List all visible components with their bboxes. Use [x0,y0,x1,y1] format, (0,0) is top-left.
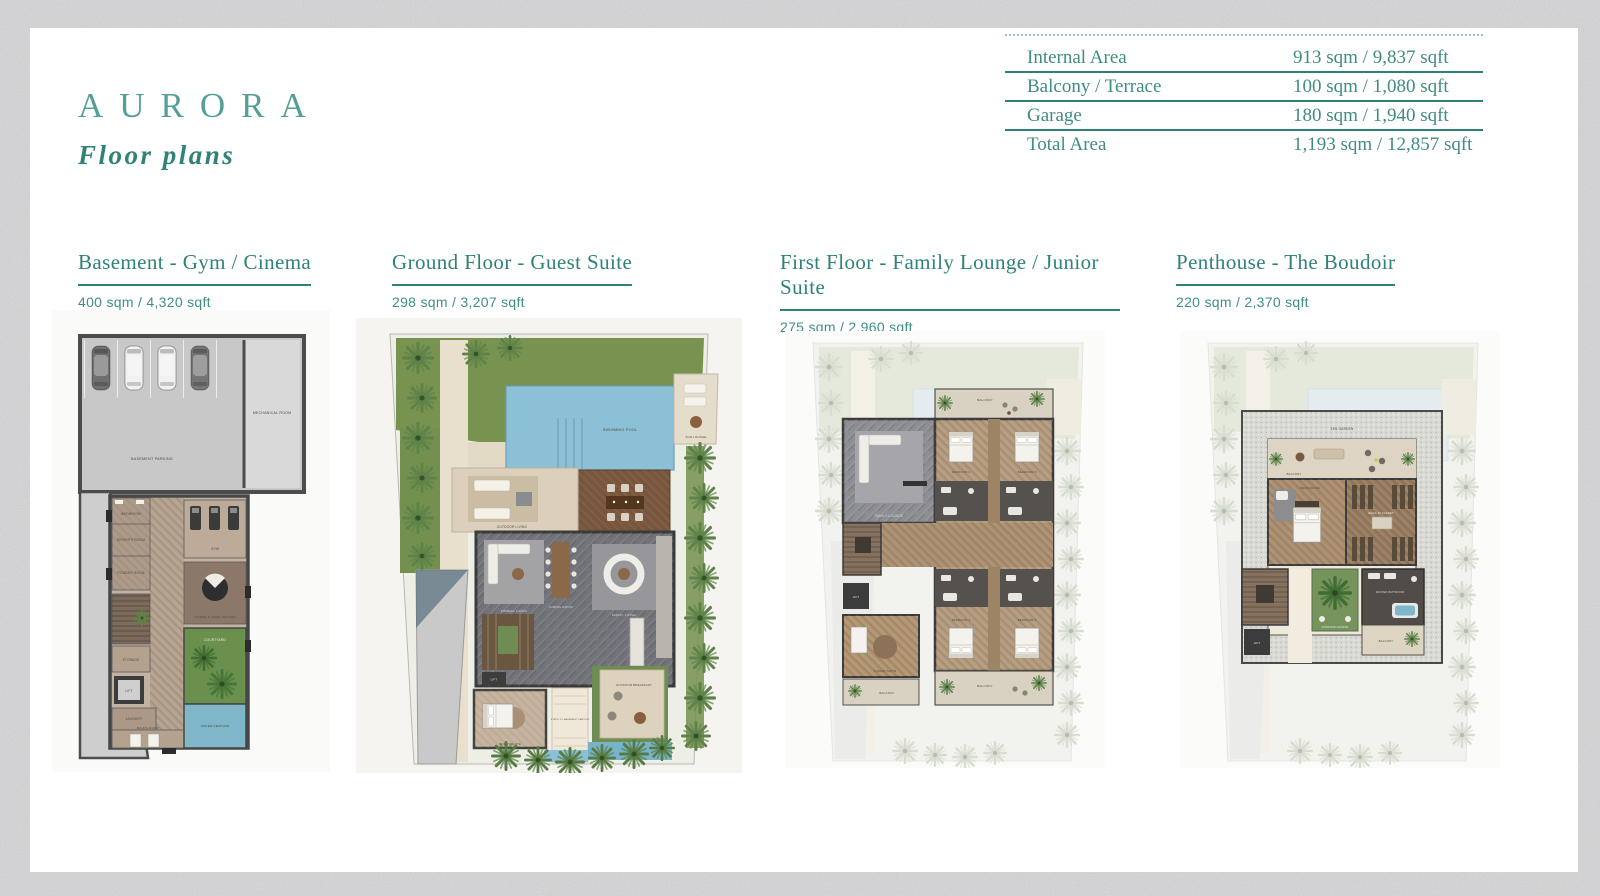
section-title: Penthouse - The Boudoir [1176,250,1395,286]
ground-floor-plan: SWIMMING POOL SUN LOUNGE OUTDOOR DINING [356,318,742,773]
area-summary-table: Internal Area 913 sqm / 9,837 sqft Balco… [1005,34,1483,158]
room-label: BALCONY [977,398,993,402]
room-label: LIFT [125,689,132,693]
palm-tree [192,646,215,669]
row-value: 913 sqm / 9,837 sqft [1293,44,1449,71]
room-label: MECHANICAL ROOM [253,411,292,415]
room-label: BALCONY [977,684,993,688]
brand-title: AURORA [78,86,322,126]
table-row: Internal Area 913 sqm / 9,837 sqft [1005,44,1483,73]
section-header-first: First Floor - Family Lounge / Junior Sui… [780,250,1120,335]
section-title: Ground Floor - Guest Suite [392,250,632,286]
car-white [158,346,176,390]
brand-tagline: Floor plans [78,140,235,171]
row-label: Internal Area [1027,44,1127,71]
row-value: 180 sqm / 1,940 sqft [1293,102,1449,129]
room-label: OUTDOOR BREAKFAST [616,683,652,687]
room-label: BEDROOM 2 [952,470,971,474]
room-label: FORMAL LIVING [501,609,528,613]
plant [134,610,149,625]
room-label: STORAGE [123,658,140,662]
car-suv-dark [191,346,209,390]
room-label: MASTER BATHROOM [1376,591,1404,594]
car-suv-dark [92,346,110,390]
room-label: MAID'S ROOM [137,726,160,730]
room-label: FAMILY LIVING [612,613,637,617]
room-label: BALCONY [1287,472,1302,476]
guest-bed [483,704,513,728]
section-area: 220 sqm / 2,370 sqft [1176,294,1496,310]
room-label: BEDROOM 5 [1018,618,1037,622]
room-label: OUTDOOR LIVING [497,525,528,529]
brochure-canvas: AURORA Floor plans Internal Area 913 sqm… [0,0,1600,896]
row-label: Balcony / Terrace [1027,73,1161,100]
room-label: OUTDOOR LOUNGE [1322,626,1349,629]
table-row: Garage 180 sqm / 1,940 sqft [1005,102,1483,131]
table-row: Balcony / Terrace 100 sqm / 1,080 sqft [1005,73,1483,102]
room-label: ZEN GARDEN [1331,427,1354,431]
section-title: First Floor - Family Lounge / Junior Sui… [780,250,1120,311]
room-label: POWDER ROOM [117,571,144,575]
room-label: WATER FEATURE [201,724,230,728]
room-label: BALCONY [1379,639,1394,643]
room-label: BEDROOM 3 [1018,470,1037,474]
room-label: DRIVER'S ROOM [117,538,145,542]
section-area: 400 sqm / 4,320 sqft [78,294,378,310]
room-label: BASEMENT PARKING [131,457,173,461]
car-white [125,346,143,390]
room-label: BALCONY [879,691,894,695]
room-label: SUN LOUNGE [685,435,706,439]
room-label: SWIMMING POOL [603,428,637,432]
room-label: LAUNDRY [126,717,143,721]
row-label: Total Area [1027,131,1106,158]
room-label: BATHROOM [121,512,141,516]
table-row: Total Area 1,193 sqm / 12,857 sqft [1005,131,1483,158]
room-label: WALK-IN CLOSET [1368,511,1394,515]
brochure-page: AURORA Floor plans Internal Area 913 sqm… [30,28,1578,872]
room-label: DINING ROOM [549,605,573,609]
section-header-basement: Basement - Gym / Cinema 400 sqm / 4,320 … [78,250,378,310]
room-label: JUNIOR SUITE [874,669,896,673]
room-label: LIFT [491,678,498,682]
section-title: Basement - Gym / Cinema [78,250,311,286]
room-label: FAMILY LOUNGE [875,514,904,518]
row-label: Garage [1027,102,1082,129]
palm-tree [209,671,236,698]
row-value: 1,193 sqm / 12,857 sqft [1293,131,1472,158]
penthouse-floor-plan: ZEN GARDEN BALCONY PENTHOUSE [1180,331,1500,768]
section-header-penthouse: Penthouse - The Boudoir 220 sqm / 2,370 … [1176,250,1496,310]
room-label: LIFT [853,595,860,599]
section-area: 298 sqm / 3,207 sqft [392,294,752,310]
room-label: CINEMA & HOME THEATER [194,615,236,619]
row-value: 100 sqm / 1,080 sqft [1293,73,1449,100]
room-label: GYM [211,547,219,551]
room-label: BEDROOM 4 [952,618,971,622]
room-label: STEPS TO BASEMENT SERVICE [551,718,590,721]
room-label: LIFT [1254,641,1261,645]
basement-floor-plan: BASEMENT PARKING MECHANICAL ROOM BATHROO… [52,310,330,772]
first-floor-plan: BALCONY FAMILY LOUNGE BEDROOM 2 BEDROOM … [785,331,1105,768]
room-label: COURTYARD [204,638,226,642]
room-label: PENTHOUSE [1300,486,1320,490]
section-header-ground: Ground Floor - Guest Suite 298 sqm / 3,2… [392,250,752,310]
